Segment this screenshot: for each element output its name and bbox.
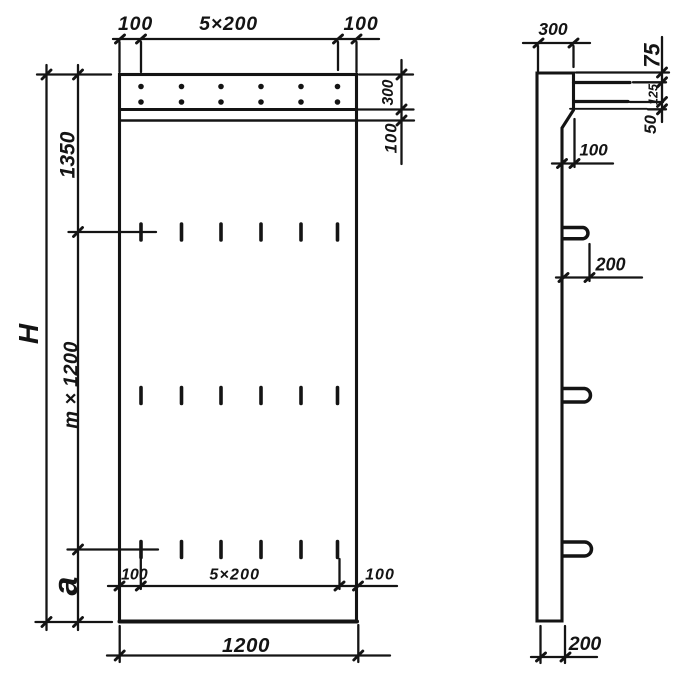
svg-text:1350: 1350 [57,131,80,178]
svg-text:5×200: 5×200 [209,567,260,584]
svg-text:200: 200 [594,255,625,275]
svg-text:H: H [13,323,44,344]
svg-text:75: 75 [640,43,665,68]
svg-text:100: 100 [118,13,153,35]
svg-text:100: 100 [344,13,379,35]
svg-text:125: 125 [647,83,661,105]
svg-text:300: 300 [538,19,567,39]
svg-text:100: 100 [365,567,395,584]
svg-text:5×200: 5×200 [199,13,258,35]
svg-text:100: 100 [382,123,401,154]
svg-text:a: a [47,577,85,596]
svg-text:100: 100 [579,141,608,160]
svg-text:300: 300 [380,79,397,105]
svg-text:100: 100 [121,567,148,584]
svg-text:50: 50 [641,115,660,134]
svg-text:1200: 1200 [222,634,270,657]
svg-text:m × 1200: m × 1200 [61,341,83,428]
svg-text:200: 200 [568,633,602,655]
